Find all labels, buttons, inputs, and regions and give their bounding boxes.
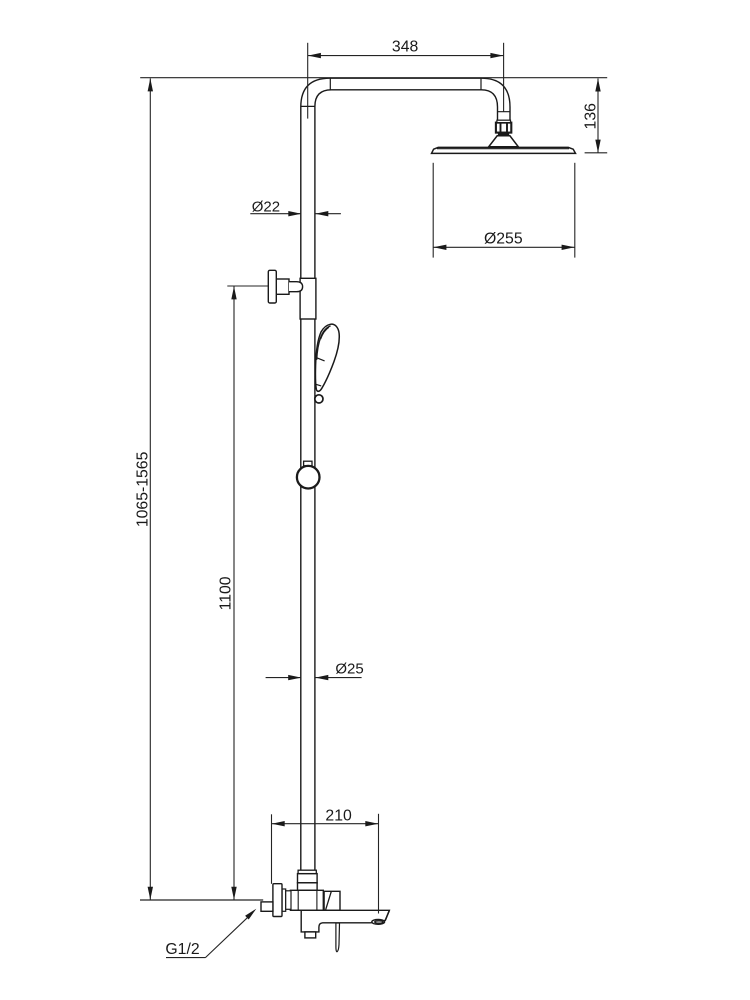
svg-text:G1/2: G1/2 <box>165 941 199 958</box>
svg-text:Ø255: Ø255 <box>484 231 523 248</box>
svg-text:Ø25: Ø25 <box>335 660 363 677</box>
svg-text:348: 348 <box>392 39 419 56</box>
svg-text:136: 136 <box>582 103 599 130</box>
svg-text:1100: 1100 <box>218 576 235 610</box>
svg-text:210: 210 <box>325 808 352 825</box>
svg-text:1065-1565: 1065-1565 <box>134 451 151 527</box>
svg-text:Ø22: Ø22 <box>252 199 280 216</box>
